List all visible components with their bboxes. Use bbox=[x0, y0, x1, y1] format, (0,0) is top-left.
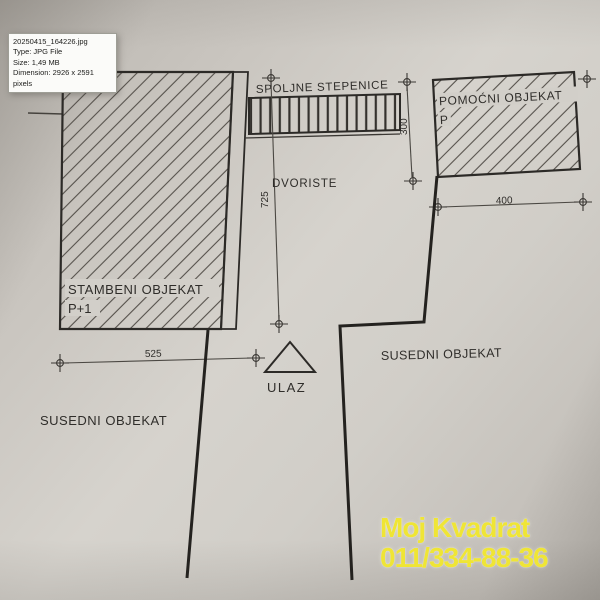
survey-marker-icon bbox=[270, 315, 288, 333]
neighbor-right-label: SUSEDNI OBJEKAT bbox=[381, 346, 502, 363]
dimension-value-400: 400 bbox=[496, 195, 514, 207]
residential-building-label: STAMBENI OBJEKAT bbox=[68, 282, 203, 297]
left-fence-line bbox=[28, 113, 63, 114]
tooltip-filename: 20250415_164226.jpg bbox=[13, 37, 112, 47]
entrance-label: ULAZ bbox=[267, 380, 306, 395]
auxiliary-floor-label: P bbox=[440, 113, 449, 127]
watermark-phone: 011/334-88-36 bbox=[380, 543, 598, 573]
entrance-triangle-icon bbox=[265, 342, 315, 372]
dimension-value-300: 300 bbox=[399, 118, 410, 135]
survey-marker-icon bbox=[404, 172, 422, 190]
watermark-brand: Moj Kvadrat bbox=[380, 513, 598, 543]
survey-marker-icon bbox=[578, 70, 596, 88]
tooltip-type: Type: JPG File bbox=[13, 47, 112, 57]
survey-marker-icon bbox=[574, 193, 592, 211]
stairs-lower-edge bbox=[244, 134, 400, 138]
residential-floor-label: P+1 bbox=[68, 301, 92, 316]
survey-marker-icon bbox=[247, 349, 265, 367]
survey-marker-icon bbox=[398, 73, 416, 91]
dimension-value-525: 525 bbox=[145, 349, 162, 360]
left-parcel-boundary bbox=[187, 330, 208, 578]
survey-marker-icon bbox=[51, 354, 69, 372]
tooltip-dimension: Dimension: 2926 x 2591 pixels bbox=[13, 68, 112, 89]
tooltip-size: Size: 1,49 MB bbox=[13, 58, 112, 68]
neighbor-left-label: SUSEDNI OBJEKAT bbox=[40, 413, 167, 428]
courtyard-label: DVORISTE bbox=[272, 178, 337, 190]
photographed-site-plan: STAMBENI OBJEKAT P+1 SPOLJNE STEPENICE P… bbox=[0, 0, 600, 600]
external-stairs-label: SPOLJNE STEPENICE bbox=[256, 79, 389, 96]
dimension-value-725: 725 bbox=[260, 191, 271, 208]
survey-marker-icon bbox=[429, 198, 447, 216]
file-info-tooltip: 20250415_164226.jpg Type: JPG File Size:… bbox=[8, 33, 117, 93]
watermark: Moj Kvadrat 011/334-88-36 bbox=[380, 513, 598, 573]
